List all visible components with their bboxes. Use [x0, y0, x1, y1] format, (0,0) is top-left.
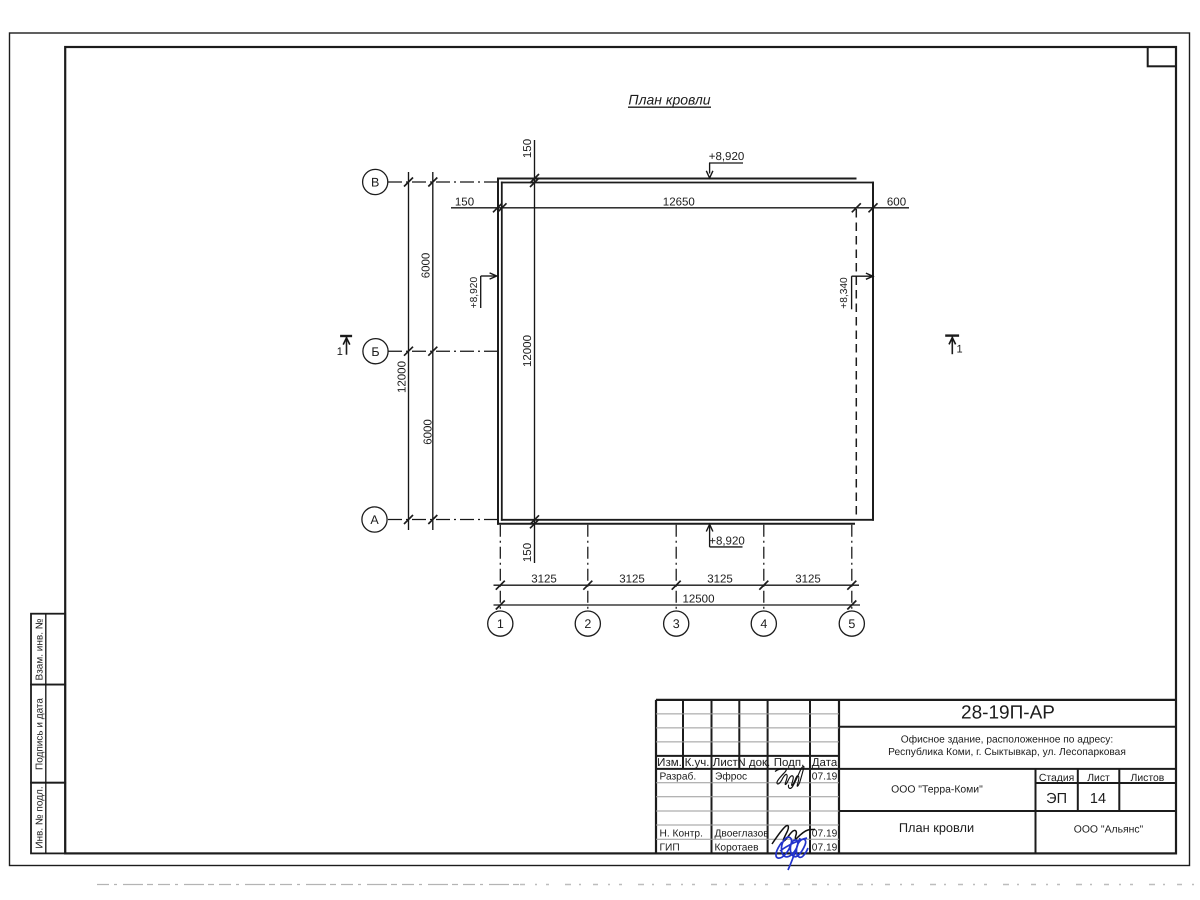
svg-text:28-19П-АР: 28-19П-АР	[961, 702, 1055, 723]
svg-text:3125: 3125	[531, 574, 557, 586]
svg-text:3125: 3125	[619, 574, 645, 586]
svg-text:Коротаев: Коротаев	[715, 842, 759, 853]
svg-text:1: 1	[497, 617, 504, 631]
svg-text:600: 600	[887, 196, 906, 208]
svg-text:12000: 12000	[522, 335, 534, 367]
svg-text:150: 150	[522, 139, 534, 158]
svg-text:Изм.: Изм.	[657, 757, 682, 769]
svg-text:План кровли: План кровли	[899, 820, 974, 835]
svg-text:В: В	[371, 176, 379, 190]
svg-text:ГИП: ГИП	[660, 842, 680, 853]
svg-text:07.19: 07.19	[812, 842, 838, 853]
svg-text:5: 5	[848, 617, 855, 631]
svg-text:Подпись и дата: Подпись и дата	[34, 698, 45, 770]
svg-text:Республика Коми, г. Сыктывкар,: Республика Коми, г. Сыктывкар, ул. Лесоп…	[888, 747, 1126, 758]
svg-text:Н. Контр.: Н. Контр.	[660, 828, 703, 839]
svg-text:14: 14	[1090, 791, 1106, 807]
svg-text:N док.: N док.	[737, 757, 770, 769]
svg-text:3125: 3125	[795, 574, 821, 586]
svg-text:План кровли: План кровли	[628, 92, 710, 108]
svg-text:3: 3	[673, 617, 680, 631]
svg-text:ООО "Терра-Коми": ООО "Терра-Коми"	[891, 785, 983, 796]
svg-text:4: 4	[760, 617, 767, 631]
svg-text:Двоеглазов: Двоеглазов	[715, 828, 769, 839]
svg-text:6000: 6000	[422, 419, 434, 445]
svg-text:Разраб.: Разраб.	[660, 772, 697, 783]
svg-text:Лист: Лист	[1087, 773, 1110, 784]
svg-text:6000: 6000	[420, 253, 432, 279]
svg-text:А: А	[370, 513, 379, 527]
svg-text:07.19: 07.19	[812, 772, 838, 783]
svg-text:ООО "Альянс": ООО "Альянс"	[1074, 825, 1144, 836]
svg-text:12500: 12500	[683, 594, 715, 606]
svg-text:150: 150	[455, 196, 474, 208]
svg-text:Взам. инв. №: Взам. инв. №	[34, 618, 45, 680]
svg-text:Инв. № подл.: Инв. № подл.	[34, 786, 45, 848]
svg-text:Эфрос: Эфрос	[715, 772, 747, 783]
svg-text:+8,920: +8,920	[469, 277, 480, 309]
svg-text:Б: Б	[371, 345, 379, 359]
svg-text:Дата: Дата	[812, 757, 838, 769]
svg-text:Листов: Листов	[1131, 773, 1165, 784]
svg-text:12000: 12000	[397, 361, 409, 393]
svg-text:+8,920: +8,920	[709, 535, 745, 547]
svg-text:07.19: 07.19	[812, 828, 838, 839]
svg-text:2: 2	[584, 617, 591, 631]
svg-text:Стадия: Стадия	[1039, 773, 1074, 784]
svg-text:Лист: Лист	[713, 757, 739, 769]
svg-text:ЭП: ЭП	[1046, 791, 1067, 807]
svg-text:Подп.: Подп.	[774, 757, 805, 769]
svg-text:К.уч.: К.уч.	[685, 757, 710, 769]
svg-text:Офисное здание, расположенное: Офисное здание, расположенное по адресу:	[901, 735, 1113, 746]
svg-text:12650: 12650	[663, 197, 695, 209]
svg-text:+8,920: +8,920	[709, 151, 745, 163]
svg-text:3125: 3125	[707, 574, 733, 586]
svg-text:+8,340: +8,340	[839, 277, 850, 309]
svg-text:1: 1	[337, 346, 343, 358]
svg-text:1: 1	[956, 343, 962, 355]
svg-text:150: 150	[522, 543, 534, 562]
